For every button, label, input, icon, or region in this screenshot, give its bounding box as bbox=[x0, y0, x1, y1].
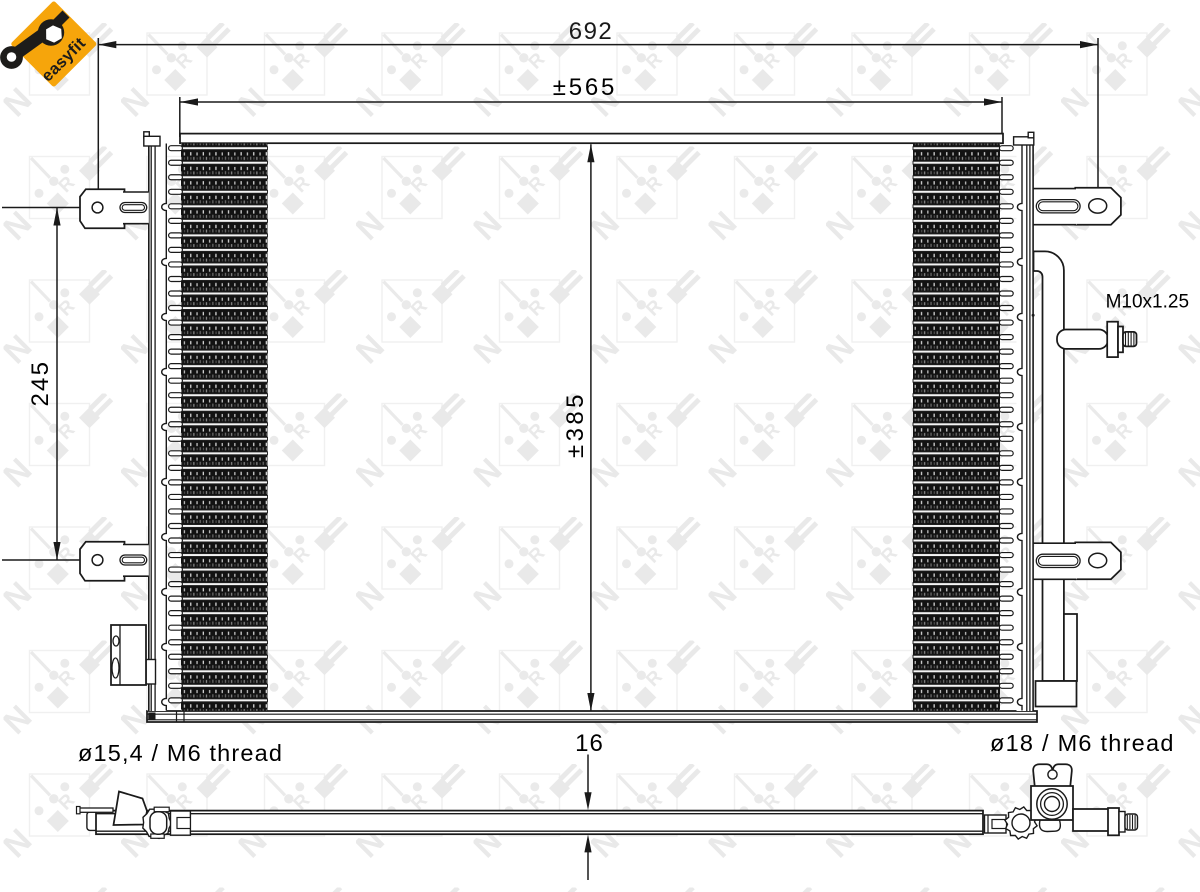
svg-text:M10x1.25: M10x1.25 bbox=[1106, 292, 1189, 313]
svg-text:16: 16 bbox=[575, 730, 604, 757]
svg-text:ø18 / M6 thread: ø18 / M6 thread bbox=[990, 730, 1175, 756]
svg-text:±565: ±565 bbox=[553, 74, 617, 101]
svg-text:245: 245 bbox=[27, 360, 54, 407]
svg-text:692: 692 bbox=[569, 18, 614, 45]
svg-text:ø15,4 / M6 thread: ø15,4 / M6 thread bbox=[78, 740, 283, 766]
svg-text:±385: ±385 bbox=[562, 391, 589, 458]
